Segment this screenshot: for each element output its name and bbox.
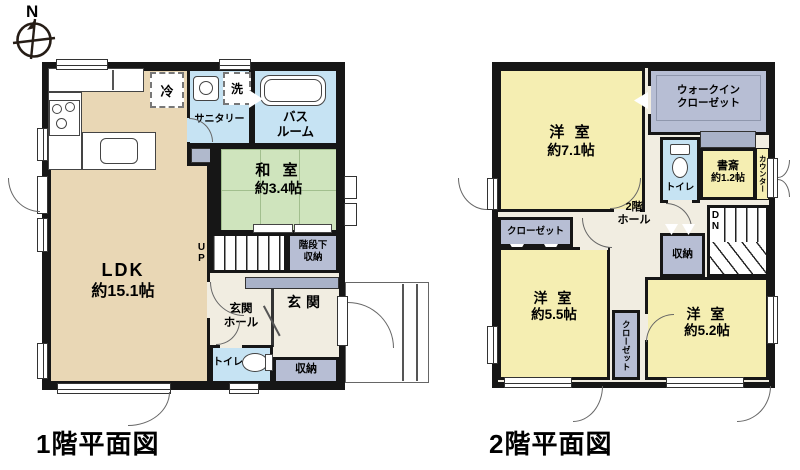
floor1-plan: 冷 LDK 約15.1帖 洗 サニタリー バス ルーム 和 室 約3.4帖 UP… xyxy=(42,62,345,390)
room-closet-v: クローゼット xyxy=(612,310,640,380)
door-gap xyxy=(220,345,242,348)
casement-arc xyxy=(778,160,790,178)
stair-treads xyxy=(724,208,766,242)
toilet-bowl-2f xyxy=(672,157,688,178)
side-door-arc xyxy=(8,178,40,212)
wic-lower-cabinet xyxy=(700,131,756,148)
closet-v-label: クローゼット xyxy=(622,320,631,371)
counter-label: カウンター xyxy=(759,155,767,193)
bath-label: バス ルーム xyxy=(254,110,337,141)
ldk-label: LDK 約15.1帖 xyxy=(63,260,183,301)
kitchen-sink xyxy=(100,138,138,164)
stairs-up xyxy=(210,233,287,273)
toilet-tank-2f xyxy=(670,144,690,155)
bedroom-7-1-size: 約7.1帖 xyxy=(512,142,630,159)
door-gap xyxy=(648,86,651,114)
door-arc-bedroom-5-5 xyxy=(582,218,612,248)
wash-basin-bowl xyxy=(199,81,213,95)
study-name: 書斎 xyxy=(701,160,755,173)
study-size: 約1.2帖 xyxy=(701,173,755,185)
hall-2f-line2: ホール xyxy=(610,214,658,227)
window xyxy=(767,296,778,344)
front-door-gap xyxy=(337,296,348,346)
fridge-spot: 冷 xyxy=(150,72,184,108)
washitsu-size: 約3.4帖 xyxy=(220,180,337,197)
stair-treads xyxy=(213,236,284,270)
wic-line1: ウォークイン xyxy=(650,84,767,97)
compass: N xyxy=(8,2,64,64)
bedroom-7-1-name: 洋 室 xyxy=(512,124,630,142)
window xyxy=(37,343,48,379)
floor1-title: 1階平面図 xyxy=(36,424,159,461)
hall-2f-line1: 2階 xyxy=(610,201,658,214)
washer-label: 洗 xyxy=(231,80,243,97)
toilet-2f-label: トイレ xyxy=(661,182,699,194)
stove-burner-2 xyxy=(65,102,75,112)
window xyxy=(487,326,498,364)
casement-window xyxy=(344,176,357,199)
wic-label: ウォークイン クローゼット xyxy=(650,84,767,110)
bedroom-5-5-size: 約5.5帖 xyxy=(502,307,606,323)
bath-label-line1: バス xyxy=(254,110,337,125)
casement-arc xyxy=(573,386,603,422)
understair-label: 階段下 収納 xyxy=(288,240,338,263)
door-gap xyxy=(580,247,608,250)
storage-1f-label: 収納 xyxy=(275,363,337,376)
ldk-size: 約15.1帖 xyxy=(63,282,183,302)
genkan-label: 玄関 xyxy=(276,294,336,311)
understair-line2: 収納 xyxy=(288,252,338,264)
window xyxy=(767,158,778,198)
bathtub-inner xyxy=(264,79,322,102)
understair-line1: 階段下 xyxy=(288,240,338,252)
door-gap xyxy=(668,200,692,203)
bedroom-5-5-label: 洋 室 約5.5帖 xyxy=(502,290,606,324)
fridge-label: 冷 xyxy=(160,81,173,100)
wall-segment xyxy=(210,146,218,233)
compass-icon xyxy=(10,15,58,63)
toilet-tank xyxy=(265,354,273,371)
ldk-name: LDK xyxy=(63,260,183,282)
window xyxy=(37,218,48,252)
stove-burner-1 xyxy=(52,104,62,114)
floor2-title: 2階平面図 xyxy=(489,424,612,461)
washer-spot: 洗 xyxy=(223,72,251,105)
bath-label-line2: ルーム xyxy=(254,125,337,140)
casement-arc xyxy=(458,178,487,210)
stairs-up-label: UP xyxy=(196,242,206,264)
closet-h-label: クローゼット xyxy=(500,226,571,238)
window xyxy=(229,383,259,394)
storage-2f-label: 収納 xyxy=(662,248,703,261)
study-label: 書斎 約1.2帖 xyxy=(701,160,755,186)
washitsu-label: 和 室 約3.4帖 xyxy=(220,162,337,197)
kitchen-counter-divider xyxy=(112,70,114,90)
toilet-1f-label: トイレ xyxy=(212,357,244,369)
window xyxy=(219,59,251,70)
casement-arc xyxy=(737,386,771,422)
sliding-door xyxy=(294,224,332,233)
floor2-plan: 洋 室 約7.1帖 ウォークイン クローゼット トイレ 書斎 約1.2帖 カウン… xyxy=(492,62,775,388)
stove-burner-3 xyxy=(56,118,67,129)
terrace-door-arc xyxy=(128,392,170,426)
window xyxy=(487,178,498,210)
casement-arc xyxy=(778,179,790,197)
sliding-door xyxy=(253,224,293,233)
stairs-down-label: DN xyxy=(710,210,720,232)
window xyxy=(504,377,572,388)
hall-2f-label: 2階 ホール xyxy=(610,201,658,228)
bedroom-7-1-label: 洋 室 約7.1帖 xyxy=(512,124,630,159)
window xyxy=(666,377,744,388)
porch-step-line xyxy=(402,284,404,381)
floorplan-page: { "colors": { "wall": "#161616", "ldk": … xyxy=(0,0,800,470)
wic-line2: クローゼット xyxy=(650,97,767,110)
window xyxy=(56,59,108,70)
bedroom-5-5-name: 洋 室 xyxy=(502,290,606,307)
washitsu-name: 和 室 xyxy=(220,162,337,180)
stair-winder xyxy=(710,242,766,274)
shoe-cabinet xyxy=(245,277,339,289)
porch-step-line xyxy=(416,284,418,381)
door-arc-toilet-1f xyxy=(216,321,240,345)
casement-window xyxy=(344,203,357,226)
kitchen-counter-top xyxy=(48,68,144,92)
window xyxy=(37,128,48,161)
